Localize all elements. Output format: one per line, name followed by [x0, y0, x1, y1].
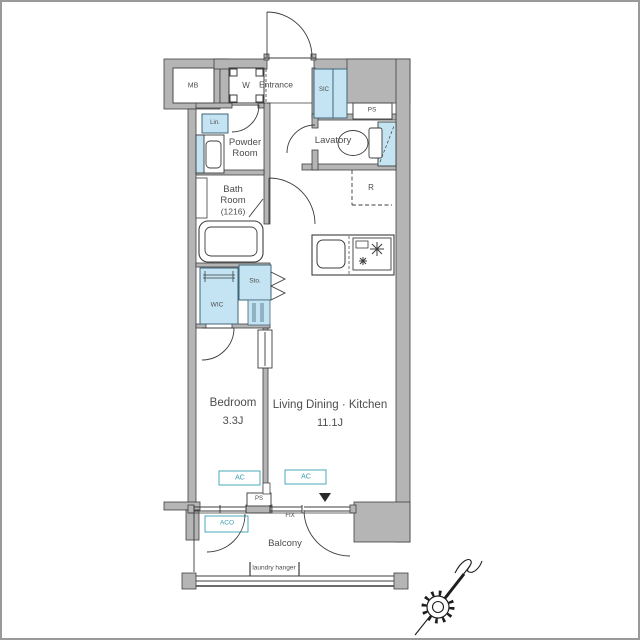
label-aco: ACO: [220, 521, 234, 528]
floor-plan: MB W Entrance SIC PS Lin. Powder Room La…: [0, 0, 640, 640]
label-ac-bedroom: AC: [235, 474, 245, 481]
label-storage: Sto.: [249, 279, 261, 286]
label-refrigerator: R: [368, 184, 374, 192]
label-laundry-hanger: laundry hanger: [252, 566, 295, 573]
label-ldk: Living Dining · Kitchen: [273, 399, 387, 411]
label-bedroom: Bedroom: [210, 397, 257, 409]
pipe-hatch: [248, 300, 270, 325]
label-sic: SIC: [319, 87, 329, 93]
label-linen: Lin.: [210, 120, 220, 126]
label-powder-1: Powder: [229, 138, 261, 148]
label-wic: WIC: [211, 303, 224, 310]
label-mb: MB: [188, 82, 199, 89]
north-flourish-icon: [455, 560, 482, 574]
label-washer: W: [242, 82, 250, 90]
floorplan-drawing: [2, 2, 640, 640]
label-ac-living: AC: [301, 473, 311, 480]
sic-box: [314, 69, 347, 118]
label-lavatory: Lavatory: [315, 136, 351, 146]
vanity-icon: [196, 135, 224, 173]
label-bath-2: Room: [220, 196, 245, 206]
balcony-doors: [207, 510, 350, 556]
label-balcony: Balcony: [268, 539, 302, 549]
wic-box: [200, 268, 238, 324]
kitchen-counter-icon: [312, 235, 394, 275]
label-fix: FIX: [285, 513, 294, 519]
storage-folding-door: [271, 272, 285, 300]
label-powder-2: Room: [232, 149, 257, 159]
entrance-door: [267, 12, 312, 57]
label-ps-bottom: PS: [255, 496, 263, 502]
label-ldk-size: 11.1J: [317, 418, 343, 430]
north-compass-icon: [415, 560, 482, 636]
label-bath-1: Bath: [223, 185, 243, 195]
label-bath-3: (1216): [221, 208, 246, 217]
label-bedroom-size: 3.3J: [223, 416, 244, 428]
label-ps-top: PS: [368, 108, 377, 115]
label-entrance: Entrance: [259, 81, 293, 90]
balcony-access-marker: [319, 493, 331, 502]
